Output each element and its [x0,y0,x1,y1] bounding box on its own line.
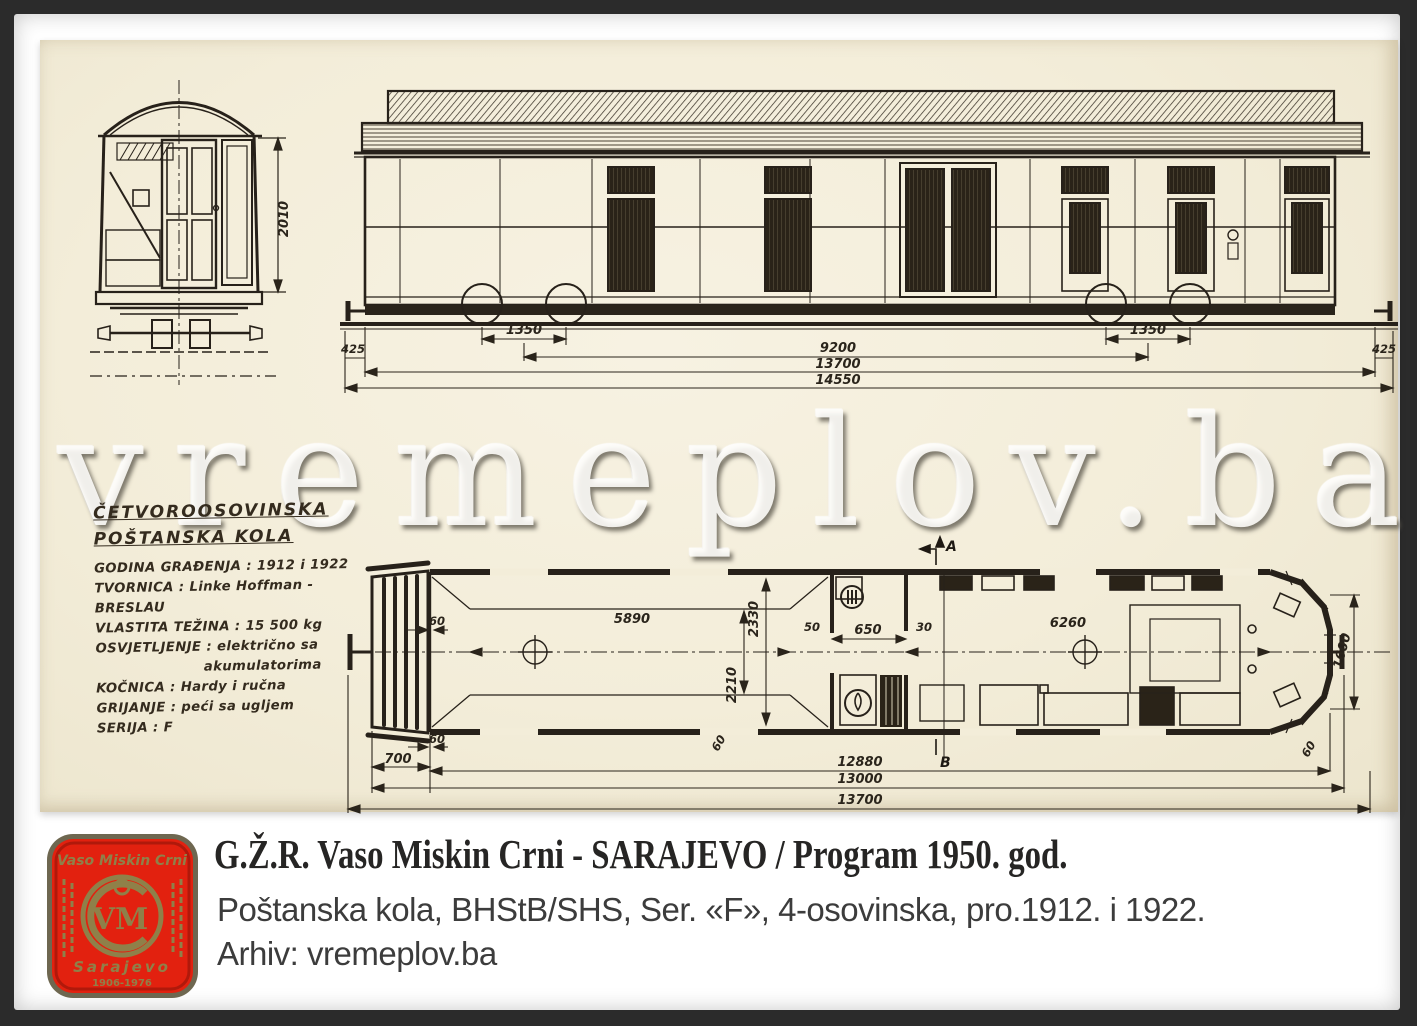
plan-dim-wall-right: 60 [1298,739,1318,760]
plan-dim-door: 650 [854,623,881,638]
spec-line: TVORNICA : Linke Hoffman - BRESLAU [94,574,385,619]
side-dim-overhang-left: 425 [340,342,365,356]
plan-dim-width-inner: 2210 [725,667,740,703]
plan-dim-comp-right: 6260 [1050,616,1086,631]
photo-page: 2010 [14,14,1400,1010]
side-dim-bogie-left: 1350 [506,323,542,338]
logo-monogram: VM [91,902,148,937]
side-dim-bogie-right: 1350 [1130,323,1166,338]
plan-dim-30: 30 [916,620,932,634]
spec-block: ČETVOROOSOVINSKA POŠTANSKA KOLA GODINA G… [93,495,387,739]
side-dim-overhang-right: 425 [1371,342,1396,356]
plan-dim-end-width: 1600 [1331,632,1355,671]
end-view-drawing: 2010 [90,80,330,395]
plan-section-a: A [945,539,957,555]
end-dim-body-height: 2010 [277,201,292,237]
plan-dim-width-outer: 2330 [747,601,762,637]
screenshot-frame: 2010 [0,0,1417,1026]
factory-logo: Vaso Miskin Crni VM Sarajevo 1906-1976 [44,831,201,1001]
caption-title: G.Ž.R. Vaso Miskin Crni - SARAJEVO / Pro… [214,830,1067,878]
logo-top-text: Vaso Miskin Crni [57,853,187,869]
plan-section-b: B [940,755,951,771]
plan-dim-body-length: 13000 [837,772,882,787]
plan-dim-50: 50 [804,620,820,634]
vent-icon [1068,635,1102,669]
plan-dim-wall-top: 60 [429,614,445,628]
caption-archive-line: Arhiv: vremeplov.ba [217,935,497,973]
plan-dim-wall-mid: 60 [708,733,728,754]
scanned-blueprint: 2010 [40,40,1398,812]
stove-icon [841,586,863,608]
caption-subtitle: Poštanska kola, BHStB/SHS, Ser. «F», 4-o… [217,891,1205,929]
side-dim-overall-length: 14550 [815,373,860,388]
plan-dim-inner-length: 12880 [837,755,882,770]
logo-years-text: 1906-1976 [92,978,152,989]
plan-dim-comp-left: 5890 [614,612,650,627]
vent-icon [518,635,552,669]
plan-dim-total-length: 13700 [837,793,882,808]
plan-dim-platform: 700 [384,752,411,767]
heater-icon [845,690,871,716]
plan-dim-wall-bottom: 60 [429,732,445,746]
side-dim-frame-length: 13700 [815,357,860,372]
plan-view-drawing: A B 60 5890 50 650 30 [340,535,1400,813]
side-dim-bogie-centers: 9200 [820,341,856,356]
logo-city-text: Sarajevo [73,958,171,976]
side-elevation-drawing: 1350 1350 9200 425 425 13700 14550 [340,75,1400,405]
